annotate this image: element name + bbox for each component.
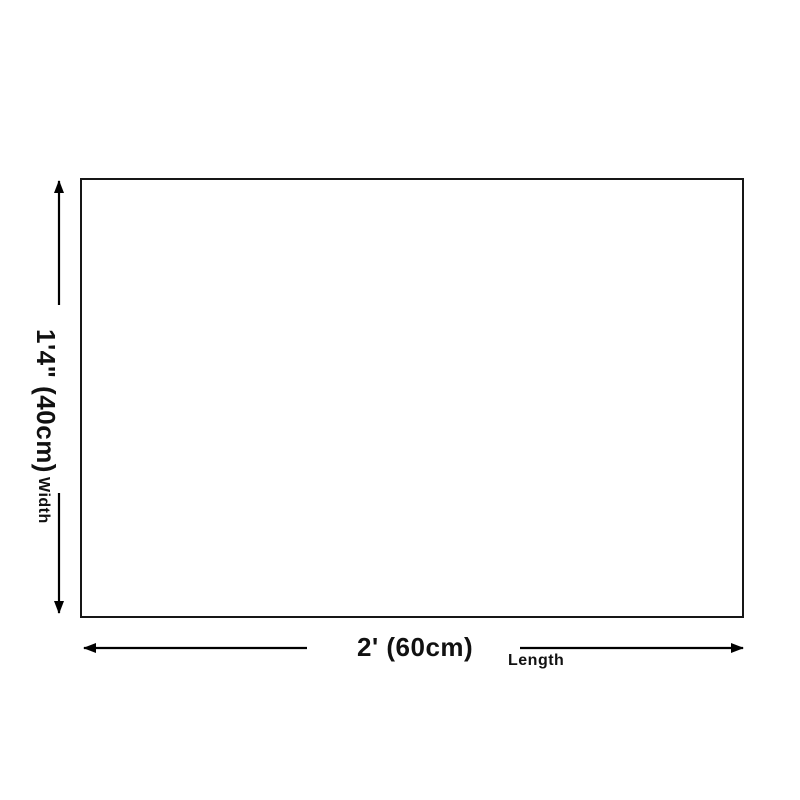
product-rectangle — [80, 178, 744, 618]
width-value-label: 1'4" (40cm) — [33, 329, 59, 473]
dimension-diagram: 1'4" (40cm) Width 2' (60cm) Length — [0, 0, 800, 800]
length-value-label: 2' (60cm) — [357, 634, 473, 660]
length-name-label: Length — [508, 653, 564, 669]
width-name-label: Width — [35, 477, 51, 524]
